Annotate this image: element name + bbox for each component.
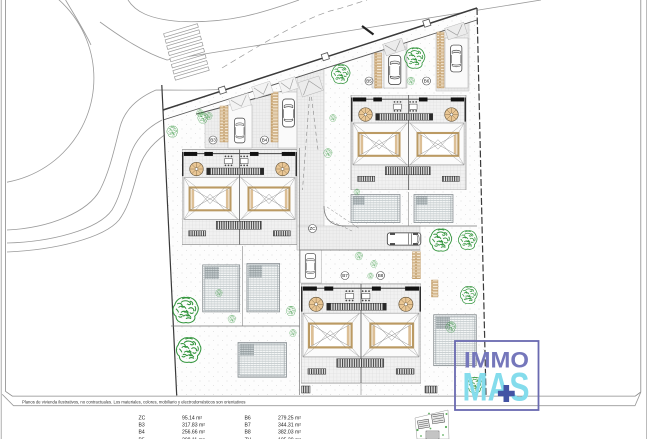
svg-text:256.66 m²: 256.66 m² — [182, 429, 205, 435]
svg-text:ZC: ZC — [309, 226, 316, 231]
svg-text:B6: B6 — [424, 79, 430, 84]
svg-text:MAS: MAS — [463, 366, 530, 410]
svg-text:317.83 m²: 317.83 m² — [182, 422, 205, 428]
svg-text:B7: B7 — [342, 273, 348, 278]
svg-text:Planos de vivienda ilustrativo: Planos de vivienda ilustrativos, no cont… — [22, 399, 245, 404]
svg-text:B8: B8 — [378, 273, 384, 278]
svg-text:B3: B3 — [139, 422, 145, 428]
svg-text:B7: B7 — [245, 422, 251, 428]
svg-text:B3: B3 — [210, 138, 216, 143]
svg-text:B5: B5 — [366, 79, 372, 84]
svg-text:279.25 m²: 279.25 m² — [278, 415, 301, 421]
svg-text:95.14 m²: 95.14 m² — [182, 415, 202, 421]
svg-text:B6: B6 — [245, 415, 251, 421]
svg-text:344.31 m²: 344.31 m² — [278, 422, 301, 428]
svg-text:ZC: ZC — [139, 415, 146, 421]
svg-text:B4: B4 — [139, 429, 145, 435]
svg-text:382.03 m²: 382.03 m² — [278, 429, 301, 435]
svg-text:B8: B8 — [245, 429, 251, 435]
svg-text:B4: B4 — [262, 138, 268, 143]
